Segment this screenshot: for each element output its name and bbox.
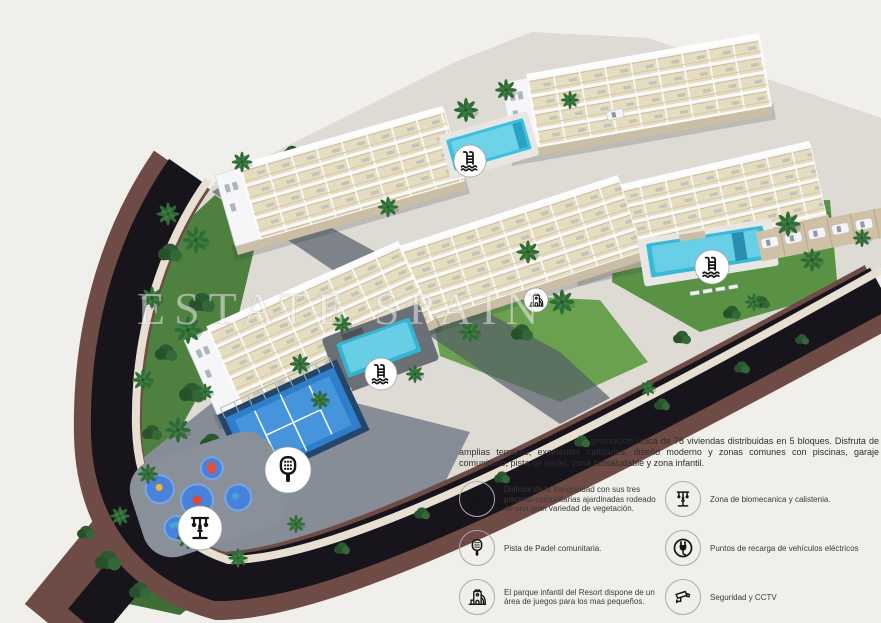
legend-item-padel: Pista de Padel comunitaria. bbox=[459, 530, 665, 566]
padel-racket-icon bbox=[459, 530, 495, 566]
ev-plug-icon bbox=[665, 530, 701, 566]
legend-label: Puntos de recarga de vehículos eléctrico… bbox=[710, 544, 859, 554]
info-panel: promoción única de 78 viviendas distribu… bbox=[459, 436, 879, 615]
playground-castle-icon bbox=[459, 579, 495, 615]
watermark: ESTATE SPAIN bbox=[137, 283, 548, 334]
biomechanics-badge bbox=[178, 506, 222, 550]
legend-label: Seguridad y CCTV bbox=[710, 593, 777, 603]
pool-ladder-icon bbox=[459, 481, 495, 517]
cctv-camera-icon bbox=[665, 579, 701, 615]
legend-label: Disfrute de la tranquilidad con sus tres… bbox=[504, 485, 662, 514]
legend-item-pools: Disfrute de la tranquilidad con sus tres… bbox=[459, 481, 665, 517]
legend-item-ev-charging: Puntos de recarga de vehículos eléctrico… bbox=[665, 530, 879, 566]
biomechanics-machine-icon bbox=[665, 481, 701, 517]
legend-item-biomechanics: Zona de biomecanica y calistenia. bbox=[665, 481, 879, 517]
padel-racket-badge bbox=[265, 447, 311, 493]
legend-item-cctv: Seguridad y CCTV bbox=[665, 579, 879, 615]
pool-ladder-badge bbox=[454, 145, 486, 177]
amenities-legend: Disfrute de la tranquilidad con sus tres… bbox=[459, 481, 879, 615]
promo-render: ESTATE SPAIN promoción única de 78 vivie… bbox=[0, 0, 881, 623]
legend-label: El parque infantil del Resort dispone de… bbox=[504, 588, 662, 607]
legend-label: Zona de biomecanica y calistenia. bbox=[710, 495, 831, 505]
pool-ladder-badge bbox=[695, 250, 729, 284]
legend-label: Pista de Padel comunitaria. bbox=[504, 544, 601, 554]
legend-item-playground: El parque infantil del Resort dispone de… bbox=[459, 579, 665, 615]
pool-ladder-badge bbox=[365, 358, 397, 390]
description-text: promoción única de 78 viviendas distribu… bbox=[459, 436, 879, 468]
